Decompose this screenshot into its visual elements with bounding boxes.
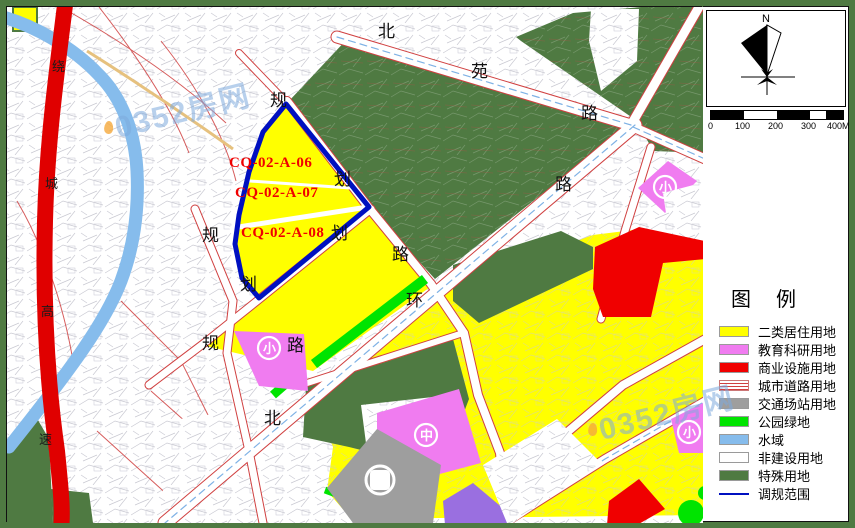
- legend-label: 城市道路用地: [758, 376, 836, 395]
- road-char: 规: [202, 226, 219, 245]
- scale-tick: 400M: [827, 121, 850, 131]
- legend-label: 交通场站用地: [758, 394, 836, 413]
- parcel-code: CQ-02-A-08: [241, 225, 324, 241]
- legend-swatch: [719, 326, 749, 337]
- expressway-char: 速: [39, 432, 52, 447]
- scale-tick: 100: [735, 121, 750, 131]
- road-char: 路: [392, 245, 409, 264]
- road-char: 路: [581, 104, 598, 123]
- legend-label: 公园绿地: [758, 412, 810, 431]
- expressway-char: 城: [45, 176, 58, 191]
- legend-label: 非建设用地: [758, 448, 823, 467]
- expressway-char: 高: [41, 304, 54, 319]
- scale-tick: 200: [768, 121, 783, 131]
- parcel-code: CQ-02-A-07: [235, 185, 318, 201]
- road-char: 划: [334, 170, 351, 189]
- legend-item: 水域: [719, 430, 849, 448]
- legend-label: 二类居住用地: [758, 322, 836, 341]
- legend-label: 水域: [758, 430, 784, 449]
- road-char: 北: [378, 22, 395, 41]
- legend-title: 图 例: [731, 283, 849, 312]
- legend-swatch-scope: [719, 488, 749, 499]
- road-char: 规: [270, 91, 287, 110]
- road-char: 苑: [471, 62, 488, 81]
- road-char: 划: [331, 224, 348, 243]
- parcel-code-labels: CQ-02-A-06 CQ-02-A-07 CQ-02-A-08: [229, 155, 324, 241]
- legend-label: 商业设施用地: [758, 358, 836, 377]
- legend-label: 特殊用地: [758, 466, 810, 485]
- parcel-code: CQ-02-A-06: [229, 155, 312, 171]
- road-char: 路: [555, 175, 572, 194]
- road-char: 路: [287, 336, 304, 355]
- flame-icon: [588, 422, 598, 436]
- scale-tick: 300: [801, 121, 816, 131]
- legend-swatch: [719, 344, 749, 355]
- road-char: 规: [202, 334, 219, 353]
- legend-swatch: [719, 452, 749, 463]
- svg-text:小: 小: [263, 341, 276, 356]
- planning-map-frame: 绕 城 高 速 小 中 小 小: [0, 0, 855, 528]
- legend-item: 非建设用地: [719, 448, 849, 466]
- road-char: 北: [264, 409, 281, 428]
- legend-swatch: [719, 434, 749, 445]
- legend-swatch: [719, 470, 749, 481]
- legend-item: 交通场站用地: [719, 394, 849, 412]
- legend-label: 教育科研用地: [758, 340, 836, 359]
- road-char: 环: [406, 291, 423, 310]
- legend-panel: N 0 100 200 300 400M 图 例: [703, 6, 849, 522]
- legend-item: 特殊用地: [719, 466, 849, 484]
- legend-item: 调规范围: [719, 484, 849, 502]
- svg-text:小: 小: [659, 180, 672, 195]
- road-char: 划: [240, 275, 257, 294]
- legend-label: 调规范围: [758, 484, 810, 503]
- legend-swatch: [719, 362, 749, 373]
- legend-item: 城市道路用地: [719, 376, 849, 394]
- scale-ticks: 0 100 200 300 400M: [703, 121, 849, 133]
- scale-tick: 0: [708, 121, 713, 131]
- legend-item: 商业设施用地: [719, 358, 849, 376]
- north-label: N: [762, 13, 770, 25]
- transport-station-symbol: [366, 466, 394, 494]
- svg-text:中: 中: [420, 428, 433, 443]
- scale-bar: [710, 110, 844, 120]
- legend-item: 教育科研用地: [719, 340, 849, 358]
- legend-item: 二类居住用地: [719, 322, 849, 340]
- north-arrow: [707, 11, 843, 104]
- flame-icon: [104, 120, 114, 134]
- north-arrow-box: N: [706, 10, 846, 107]
- expressway-char: 绕: [52, 59, 65, 74]
